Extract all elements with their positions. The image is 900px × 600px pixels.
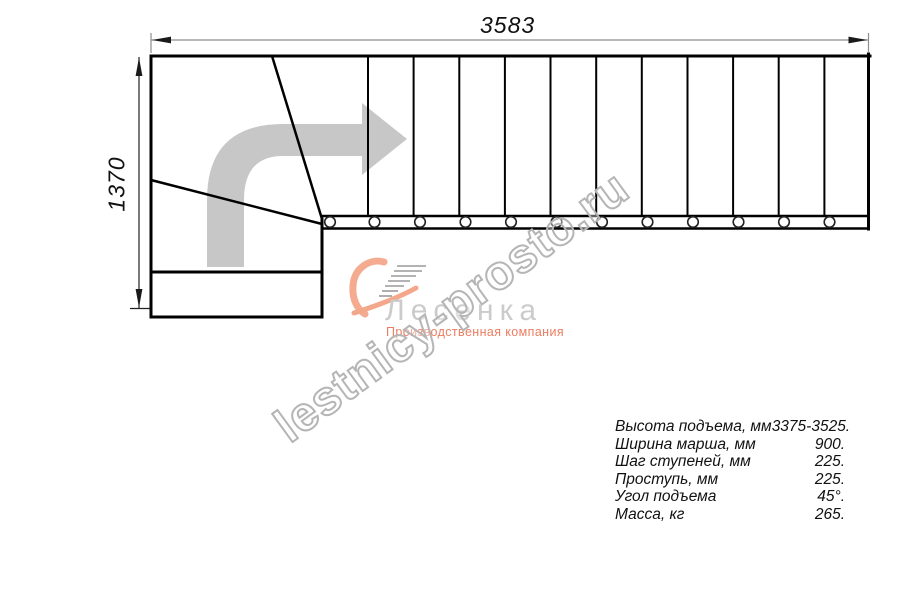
spec-value: 900. xyxy=(815,436,845,454)
spec-value: 225. xyxy=(815,453,845,471)
spec-label: Высота подъема, мм xyxy=(615,418,772,436)
spec-label: Ширина марша, мм xyxy=(615,436,756,454)
baluster-circle xyxy=(415,217,426,228)
spec-value: 265. xyxy=(815,506,845,524)
spec-row: Масса, кг 265. xyxy=(615,506,845,524)
height-dim-arrow-bottom xyxy=(136,289,143,308)
staircase-drawing-page: 3583 1370 Лесенка Производственная компа… xyxy=(0,0,900,600)
baluster-circle xyxy=(688,217,699,228)
spec-value: 225. xyxy=(815,471,845,489)
height-dimension-label: 1370 xyxy=(104,156,131,211)
spec-row: Угол подъема 45°. xyxy=(615,488,845,506)
baluster-circle xyxy=(506,217,517,228)
spec-row: Высота подъема, мм 3375-3525. xyxy=(615,418,845,436)
baluster-circle xyxy=(779,217,790,228)
baluster-circle xyxy=(824,217,835,228)
spec-label: Проступь, мм xyxy=(615,471,718,489)
spec-value: 3375-3525. xyxy=(772,418,850,436)
height-dimension xyxy=(130,57,152,309)
width-dimension-label: 3583 xyxy=(480,12,535,39)
spec-label: Масса, кг xyxy=(615,506,684,524)
baluster-circle xyxy=(325,217,336,228)
baluster-circle xyxy=(460,217,471,228)
baluster-circle xyxy=(733,217,744,228)
spec-value: 45°. xyxy=(817,488,845,506)
spec-row: Шаг ступеней, мм 225. xyxy=(615,453,845,471)
spec-row: Проступь, мм 225. xyxy=(615,471,845,489)
width-dim-arrow-right xyxy=(849,37,868,44)
width-dim-arrow-left xyxy=(152,37,171,44)
spec-label: Угол подъема xyxy=(615,488,716,506)
spec-label: Шаг ступеней, мм xyxy=(615,453,751,471)
baluster-circle xyxy=(642,217,653,228)
height-dim-arrow-top xyxy=(136,58,143,77)
direction-arrow xyxy=(207,103,407,267)
spec-row: Ширина марша, мм 900. xyxy=(615,436,845,454)
spec-table: Высота подъема, мм 3375-3525. Ширина мар… xyxy=(615,418,845,523)
baluster-circle xyxy=(369,217,380,228)
